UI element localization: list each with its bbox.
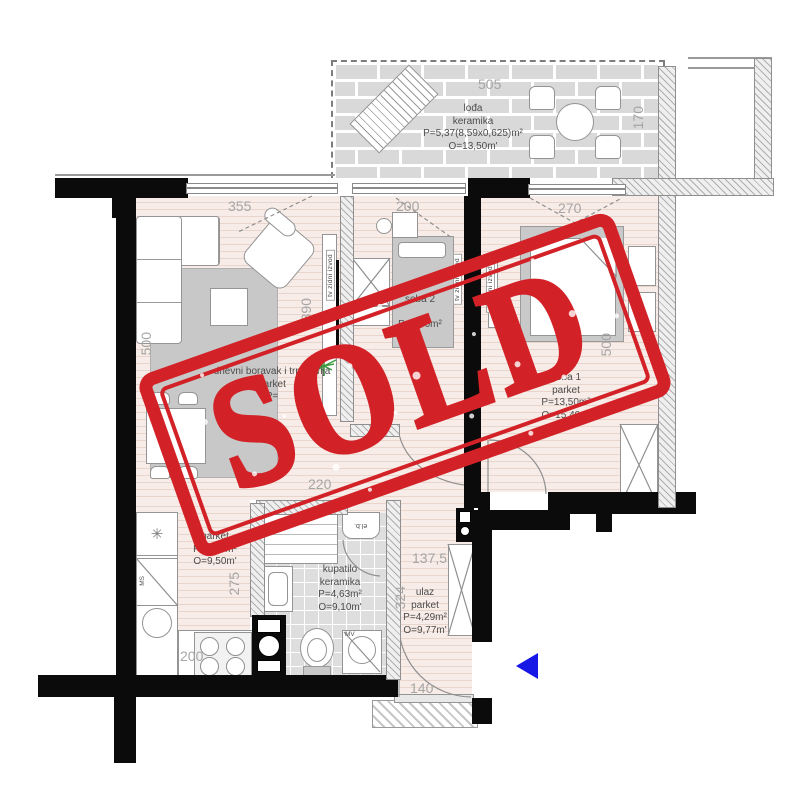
wall-top-right-band (612, 178, 774, 196)
hall-label: ulaz parket P=4,29m² O=9,77m' (403, 587, 447, 637)
entry-threshold (394, 694, 474, 703)
dim-terrace-depth: 170 (630, 106, 646, 129)
wall-hall-right (472, 510, 492, 642)
bedroom2-chair (376, 218, 392, 234)
oven-detail (257, 660, 281, 672)
fridge: ✳ (136, 512, 178, 556)
terrace-outline: O=13,50m' (423, 141, 523, 154)
outside-corridor-floor (372, 700, 478, 728)
exterior-edge-line (55, 174, 335, 176)
snowflake-icon: ✳ (151, 525, 164, 543)
dim-terrace-width: 505 (478, 76, 501, 92)
oven-knob (258, 635, 280, 657)
dim-kitchen-bottom: 200 (180, 648, 203, 664)
bathroom-floor: keramika (318, 577, 362, 590)
hall-wardrobe (448, 544, 475, 636)
terrace-floor: keramika (423, 116, 523, 129)
wall-right-shared (658, 66, 676, 508)
terrace-name: lođa (423, 103, 523, 116)
hall-area: P=4,29m² (403, 612, 447, 625)
terrace-area: P=5,37(8,59x0,625)m² (423, 128, 523, 141)
wall-left-exterior (116, 196, 136, 698)
hall-cabinet-detail (459, 511, 471, 523)
washing-machine-drum (348, 636, 376, 664)
bathroom-name: kupatilo (318, 564, 362, 577)
bedroom2-window (352, 183, 466, 194)
wall-bottom-left-leg (114, 697, 136, 763)
terrace-chair (529, 135, 555, 159)
hall-outline: O=9,77m' (403, 625, 447, 638)
terrace-chair (595, 86, 621, 110)
bedroom2-desk (392, 212, 418, 238)
hall-name: ulaz (403, 587, 447, 600)
neighbor-wall (754, 58, 772, 180)
washer-label: MV (345, 631, 355, 638)
wall-bottom (38, 675, 398, 697)
terrace-chair (529, 86, 555, 110)
toilet-seat (307, 638, 327, 662)
wall-entry-cap (472, 698, 492, 724)
terrace-table (556, 103, 594, 141)
dishwasher-label: MS (139, 576, 146, 586)
wall-top-middle (468, 178, 530, 198)
wall-stub-below-bedroom1 (596, 514, 612, 532)
bathroom-outline: O=9,10m' (318, 602, 362, 615)
dim-bedroom2-top: 200 (396, 198, 419, 214)
hall-floor: parket (403, 600, 447, 613)
terrace-label: lođa keramika P=5,37(8,59x0,625)m² O=13,… (423, 103, 523, 153)
hall-cabinet-knob (460, 526, 470, 536)
bathroom-area: P=4,63m² (318, 589, 362, 602)
floor-plan: ✳ ✳ MS el.b. MV (0, 0, 800, 800)
oven-detail (257, 619, 281, 633)
stove-burner (226, 657, 245, 676)
dim-living-top: 355 (228, 198, 251, 214)
dim-kitchen-side: 275 (226, 572, 242, 595)
stove-burner (226, 637, 245, 656)
oven-column (252, 615, 286, 675)
washbasin-bowl (268, 572, 288, 606)
bathroom-label: kupatilo keramika P=4,63m² O=9,10m' (318, 564, 362, 614)
entry-arrow-icon (516, 653, 538, 679)
dim-hall-closet: 137,5 (412, 550, 447, 566)
hall-cabinet (456, 508, 474, 542)
kitchen-sink (142, 608, 172, 638)
terrace-chair (595, 135, 621, 159)
living-room-window (186, 183, 338, 194)
dim-hall-door: 140 (410, 680, 433, 696)
